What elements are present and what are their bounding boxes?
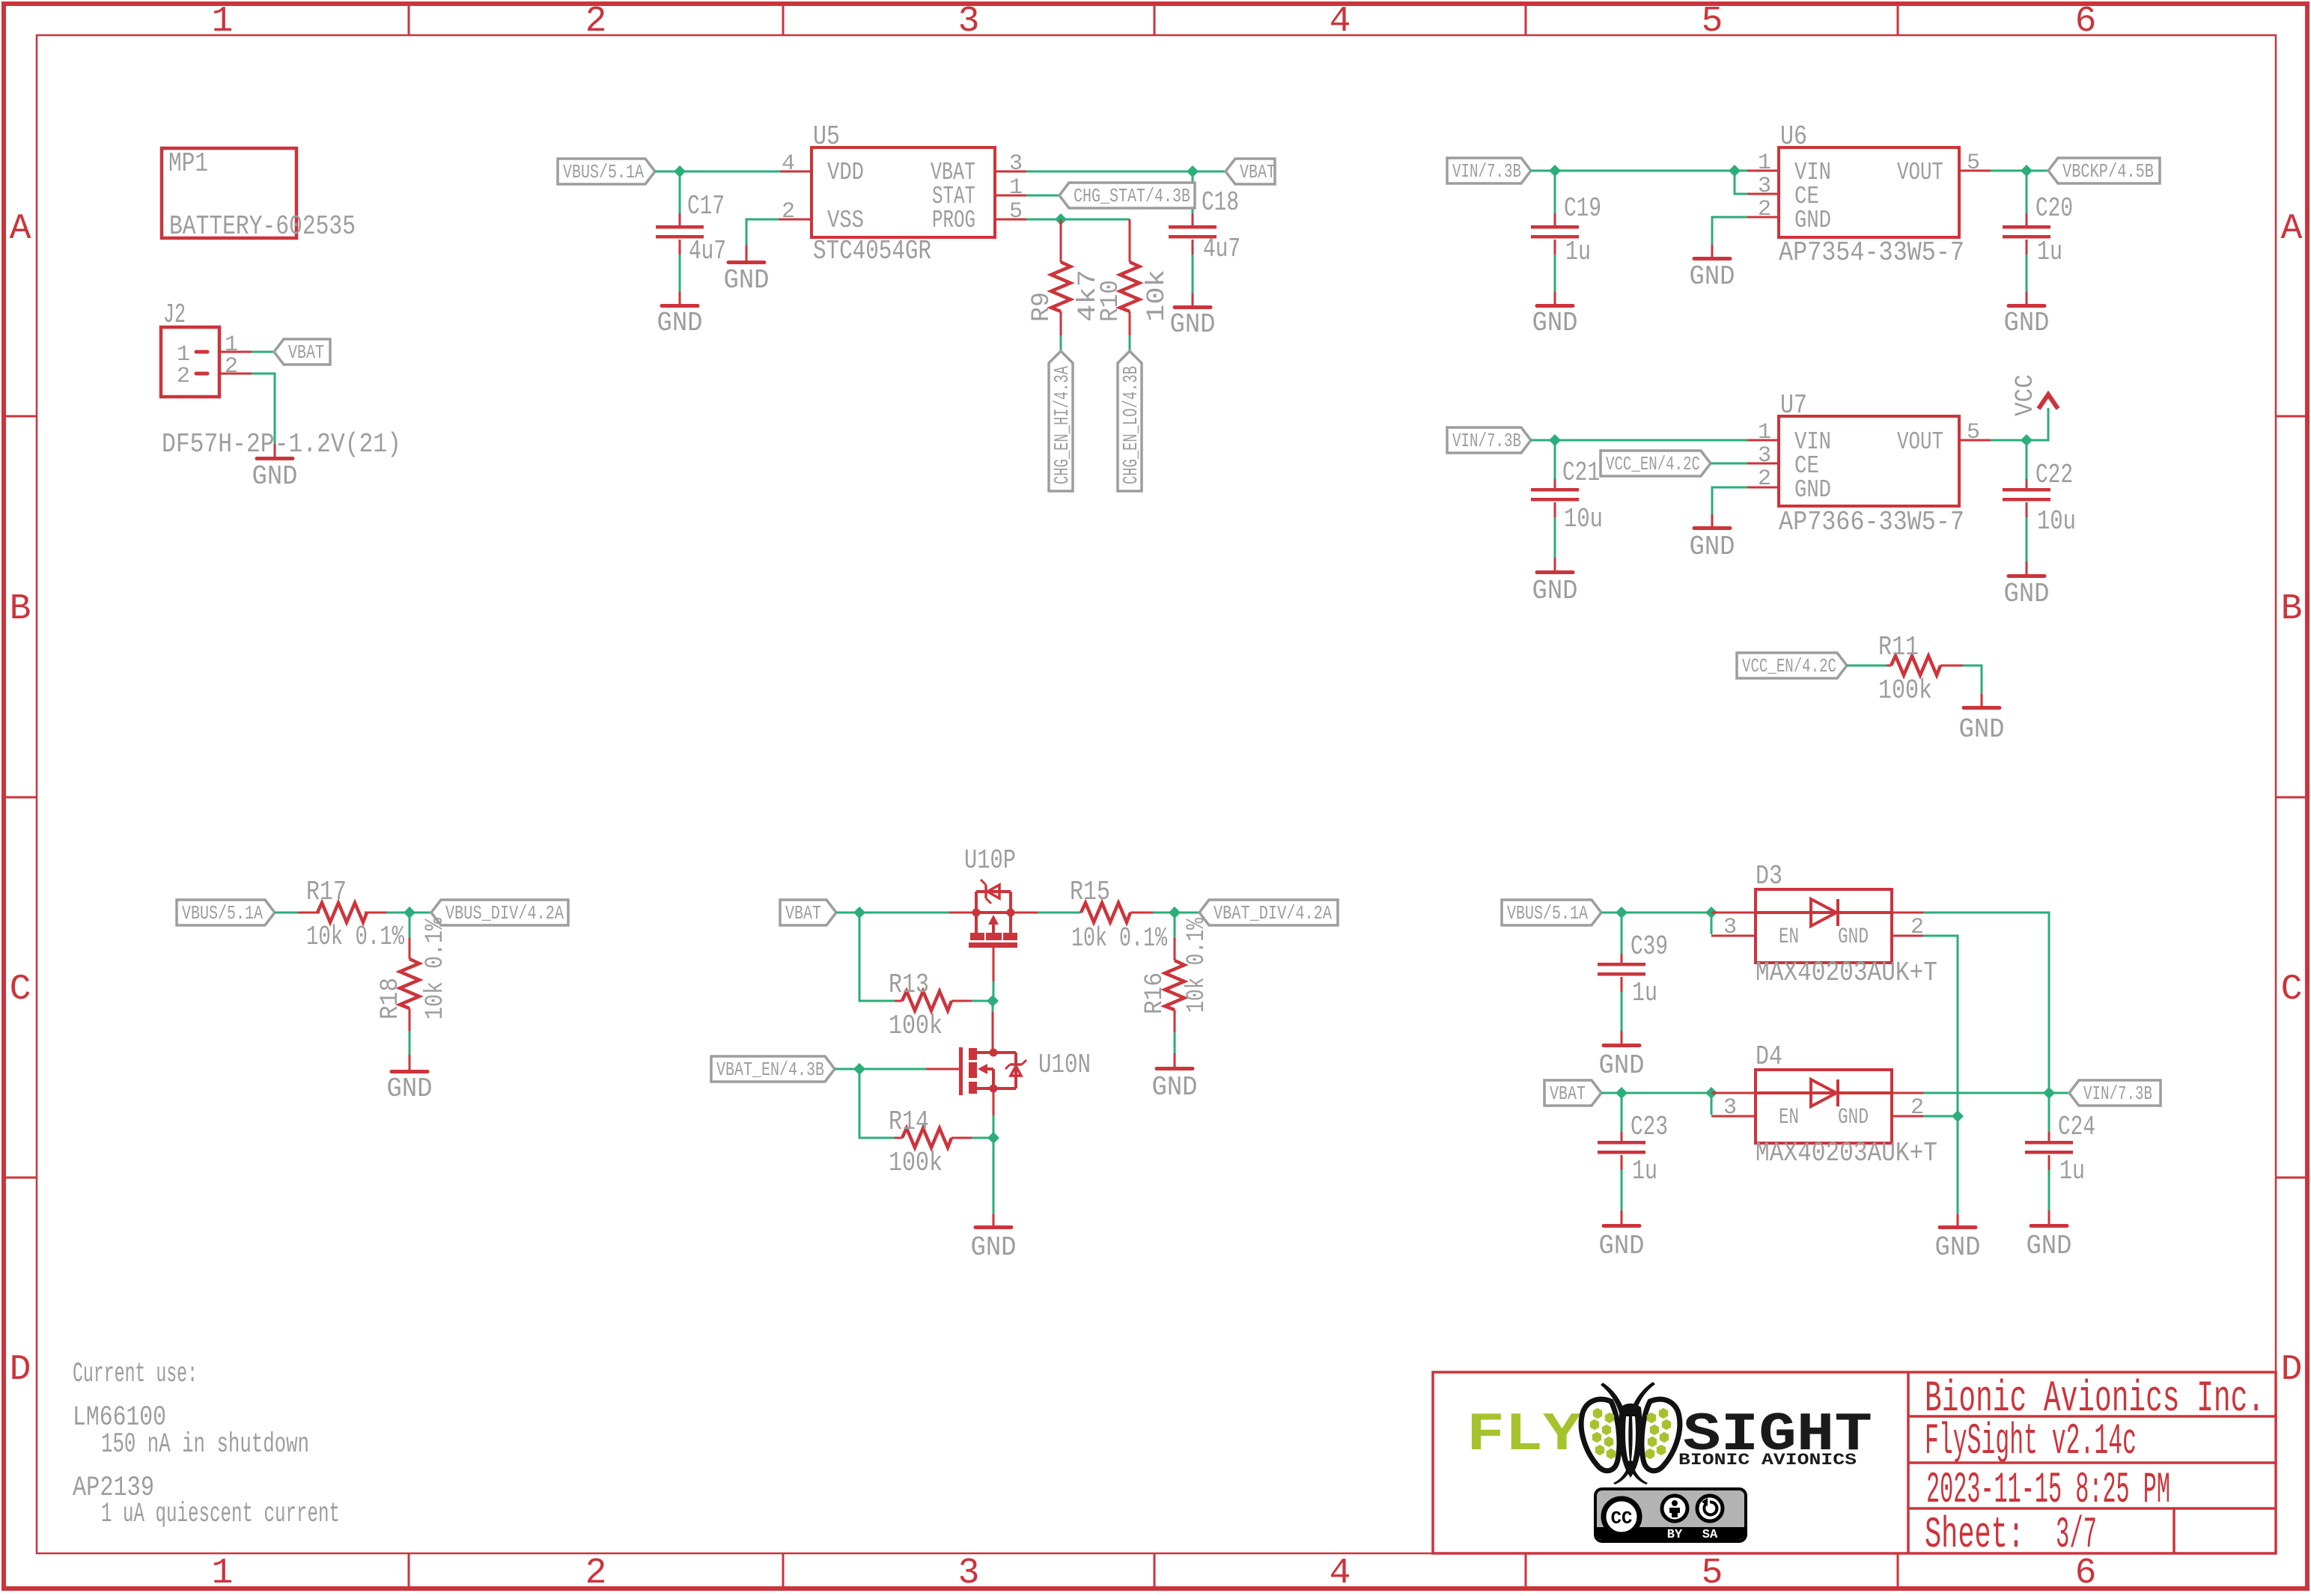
svg-text:VBUS/5.1A: VBUS/5.1A	[1507, 902, 1588, 925]
svg-text:1u: 1u	[1565, 237, 1591, 267]
svg-text:C: C	[10, 969, 31, 1010]
svg-text:5: 5	[1009, 199, 1023, 225]
svg-text:GND: GND	[1532, 308, 1578, 338]
svg-text:BIONIC AVIONICS: BIONIC AVIONICS	[1678, 1451, 1857, 1469]
svg-text:3: 3	[1009, 151, 1023, 177]
svg-text:GND: GND	[1959, 714, 2005, 745]
svg-text:GND: GND	[2027, 1231, 2072, 1261]
svg-text:MAX40203AUK+T: MAX40203AUK+T	[1756, 957, 1937, 988]
svg-text:BY: BY	[1667, 1528, 1683, 1542]
svg-text:C22: C22	[2036, 460, 2073, 490]
svg-text:1: 1	[212, 1, 234, 42]
svg-text:5: 5	[1702, 1553, 1723, 1592]
svg-text:GND: GND	[1170, 309, 1216, 340]
svg-text:GND: GND	[971, 1232, 1017, 1263]
svg-text:VBAT: VBAT	[1240, 161, 1276, 183]
svg-text:3: 3	[958, 1553, 980, 1592]
svg-text:U10P: U10P	[964, 845, 1016, 876]
svg-text:GND: GND	[724, 265, 770, 296]
svg-text:2: 2	[177, 364, 190, 389]
svg-text:R9: R9	[1028, 292, 1056, 322]
svg-text:100k: 100k	[1878, 675, 1932, 706]
svg-text:GND: GND	[1532, 576, 1578, 606]
svg-text:2: 2	[782, 199, 795, 225]
svg-text:2023-11-15 8:25 PM: 2023-11-15 8:25 PM	[1926, 1466, 2170, 1515]
svg-text:2: 2	[585, 1, 607, 42]
svg-text:GND: GND	[2004, 579, 2050, 609]
svg-text:10k: 10k	[1143, 269, 1172, 322]
svg-text:100k: 100k	[889, 1148, 943, 1178]
svg-text:R15: R15	[1070, 877, 1110, 907]
svg-text:10k 0.1%: 10k 0.1%	[1183, 918, 1211, 1013]
svg-text:3: 3	[1723, 915, 1737, 940]
svg-text:10k 0.1%: 10k 0.1%	[1071, 923, 1167, 954]
svg-text:C20: C20	[2036, 193, 2073, 224]
svg-text:1: 1	[212, 1553, 234, 1592]
svg-text:VIN/7.3B: VIN/7.3B	[1452, 160, 1521, 183]
svg-text:10u: 10u	[1564, 504, 1603, 534]
svg-text:C39: C39	[1631, 931, 1668, 962]
svg-text:GND: GND	[1690, 532, 1735, 562]
svg-text:1: 1	[1009, 175, 1023, 201]
svg-text:3: 3	[1758, 174, 1771, 199]
svg-text:GND: GND	[387, 1073, 433, 1104]
svg-text:VBAT_EN/4.3B: VBAT_EN/4.3B	[716, 1059, 824, 1081]
svg-text:D: D	[2281, 1350, 2303, 1390]
svg-text:C24: C24	[2058, 1112, 2095, 1142]
svg-text:R13: R13	[889, 969, 929, 1000]
svg-text:C23: C23	[1631, 1112, 1668, 1142]
svg-text:4u7: 4u7	[1203, 234, 1240, 264]
svg-text:SA: SA	[1702, 1528, 1718, 1542]
svg-text:VBUS/5.1A: VBUS/5.1A	[563, 161, 644, 183]
svg-text:Sheet:: Sheet:	[1925, 1511, 2024, 1560]
svg-text:B: B	[2281, 589, 2303, 630]
svg-text:150 nA in shutdown: 150 nA in shutdown	[101, 1429, 309, 1461]
svg-text:GND: GND	[252, 461, 298, 492]
svg-text:C17: C17	[687, 191, 725, 222]
svg-text:VCC_EN/4.2C: VCC_EN/4.2C	[1742, 655, 1836, 677]
svg-text:FlySight v2.14c: FlySight v2.14c	[1925, 1418, 2137, 1466]
svg-text:EN: EN	[1779, 1105, 1799, 1130]
svg-text:VIN/7.3B: VIN/7.3B	[1452, 430, 1521, 452]
svg-text:5: 5	[1967, 150, 1980, 176]
svg-text:VOUT: VOUT	[1897, 428, 1943, 456]
svg-text:2: 2	[585, 1553, 607, 1592]
svg-text:C18: C18	[1202, 187, 1239, 218]
svg-text:CC: CC	[1611, 1509, 1633, 1529]
svg-text:Current use:: Current use:	[73, 1359, 198, 1390]
svg-text:D: D	[10, 1350, 31, 1390]
svg-text:R14: R14	[889, 1106, 929, 1137]
svg-text:EN: EN	[1779, 925, 1799, 950]
svg-text:VBAT_DIV/4.2A: VBAT_DIV/4.2A	[1214, 902, 1332, 925]
svg-text:GND: GND	[1690, 261, 1735, 292]
svg-text:VBAT: VBAT	[785, 902, 821, 925]
svg-text:DF57H-2P-1.2V(21): DF57H-2P-1.2V(21)	[162, 429, 401, 460]
svg-text:3: 3	[1758, 443, 1771, 469]
svg-text:1u: 1u	[1632, 1156, 1657, 1187]
svg-text:4: 4	[1330, 1553, 1351, 1592]
svg-text:GND: GND	[1599, 1050, 1645, 1081]
svg-text:PROG: PROG	[932, 207, 975, 234]
svg-text:4u7: 4u7	[689, 236, 726, 266]
svg-text:VBAT: VBAT	[1550, 1082, 1586, 1105]
svg-text:GND: GND	[2004, 308, 2050, 338]
svg-text:2: 2	[1758, 197, 1771, 222]
svg-text:R18: R18	[377, 978, 405, 1020]
svg-text:1u: 1u	[1632, 978, 1657, 1008]
svg-text:10k 0.1%: 10k 0.1%	[421, 918, 450, 1020]
svg-text:4: 4	[1330, 1, 1351, 42]
svg-text:C: C	[2281, 969, 2303, 1010]
svg-text:CHG_EN_HI/4.3A: CHG_EN_HI/4.3A	[1052, 365, 1074, 484]
svg-text:GND: GND	[1935, 1232, 1981, 1263]
svg-text:GND: GND	[657, 308, 703, 338]
svg-text:1 uA quiescent current: 1 uA quiescent current	[101, 1499, 340, 1530]
svg-text:B: B	[10, 589, 31, 630]
svg-text:AP7354-33W5-7: AP7354-33W5-7	[1779, 237, 1964, 268]
svg-text:2: 2	[225, 354, 238, 380]
svg-text:R16: R16	[1141, 972, 1169, 1014]
svg-text:GND: GND	[1838, 1105, 1869, 1130]
svg-text:1u: 1u	[2037, 237, 2062, 267]
svg-text:R10: R10	[1097, 280, 1125, 322]
svg-text:VBUS_DIV/4.2A: VBUS_DIV/4.2A	[445, 902, 564, 925]
svg-text:GND: GND	[1794, 476, 1831, 504]
svg-text:AP7366-33W5-7: AP7366-33W5-7	[1779, 507, 1964, 537]
svg-text:BATTERY-602535: BATTERY-602535	[169, 211, 356, 242]
svg-text:100k: 100k	[889, 1011, 943, 1041]
svg-text:6: 6	[2075, 1, 2097, 42]
svg-text:FLY: FLY	[1467, 1404, 1582, 1466]
svg-text:VSS: VSS	[827, 207, 864, 234]
svg-text:VCC_EN/4.2C: VCC_EN/4.2C	[1606, 453, 1700, 475]
svg-text:3: 3	[958, 1, 980, 42]
svg-text:VIN/7.3B: VIN/7.3B	[2083, 1082, 2152, 1105]
svg-text:CHG_STAT/4.3B: CHG_STAT/4.3B	[1074, 185, 1190, 207]
svg-text:1: 1	[1758, 150, 1771, 176]
svg-text:R17: R17	[306, 877, 347, 907]
svg-text:GND: GND	[1838, 925, 1869, 950]
svg-text:Bionic Avionics Inc.: Bionic Avionics Inc.	[1925, 1375, 2265, 1424]
svg-text:R11: R11	[1878, 632, 1919, 663]
svg-text:C19: C19	[1564, 193, 1601, 224]
svg-text:STC4054GR: STC4054GR	[813, 236, 931, 266]
svg-text:1: 1	[1758, 420, 1771, 445]
svg-text:GND: GND	[1152, 1072, 1198, 1103]
svg-text:C21: C21	[1562, 457, 1600, 488]
svg-text:MP1: MP1	[168, 148, 208, 179]
svg-text:5: 5	[1967, 420, 1980, 445]
svg-text:3: 3	[1723, 1095, 1737, 1121]
svg-text:10k 0.1%: 10k 0.1%	[306, 922, 404, 952]
svg-text:VDD: VDD	[827, 159, 864, 186]
svg-text:GND: GND	[1599, 1231, 1645, 1261]
svg-text:U10N: U10N	[1038, 1050, 1091, 1080]
svg-text:4: 4	[782, 151, 795, 177]
svg-text:D4: D4	[1756, 1041, 1782, 1072]
svg-text:1u: 1u	[2059, 1156, 2085, 1187]
svg-text:VOUT: VOUT	[1897, 159, 1943, 186]
svg-text:5: 5	[1702, 1, 1723, 42]
svg-text:3/7: 3/7	[2056, 1511, 2097, 1560]
svg-text:A: A	[10, 209, 31, 249]
svg-text:VBUS/5.1A: VBUS/5.1A	[182, 902, 263, 925]
svg-text:MAX40203AUK+T: MAX40203AUK+T	[1756, 1138, 1937, 1169]
svg-text:VBAT: VBAT	[288, 341, 324, 364]
svg-text:A: A	[2281, 209, 2303, 249]
svg-text:CHG_EN_LO/4.3B: CHG_EN_LO/4.3B	[1121, 366, 1143, 484]
svg-text:D3: D3	[1756, 861, 1782, 892]
svg-text:VBCKP/4.5B: VBCKP/4.5B	[2062, 160, 2154, 183]
svg-text:GND: GND	[1794, 207, 1831, 234]
svg-text:VCC: VCC	[2012, 374, 2040, 416]
svg-text:10u: 10u	[2037, 506, 2076, 537]
